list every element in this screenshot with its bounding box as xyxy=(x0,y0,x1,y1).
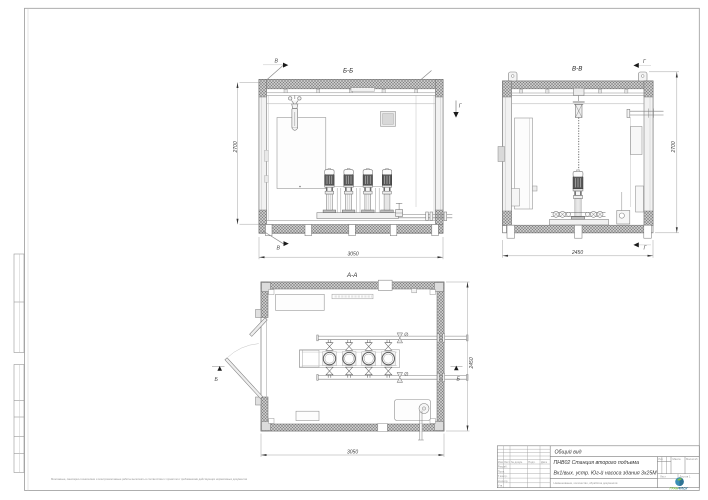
svg-text:Дата: Дата xyxy=(541,460,547,464)
svg-text:В-В: В-В xyxy=(572,66,582,73)
svg-text:В: В xyxy=(275,59,279,65)
svg-text:Наименование, количество, обра: Наименование, количество, обработка доку… xyxy=(554,481,618,485)
svg-text:Т.контр.: Т.контр. xyxy=(498,474,508,478)
svg-text:В: В xyxy=(277,246,281,252)
svg-text:Разраб.: Разраб. xyxy=(498,465,508,469)
svg-text:Масштаб: Масштаб xyxy=(686,457,698,461)
svg-text:Н.контр.: Н.контр. xyxy=(498,479,509,483)
svg-text:2450: 2450 xyxy=(571,250,583,256)
svg-text:2700: 2700 xyxy=(233,141,239,153)
svg-text:Пров.: Пров. xyxy=(498,469,505,473)
svg-text:ПНВ02 Станция второго подъема: ПНВ02 Станция второго подъема xyxy=(554,460,640,466)
svg-text:Изм: Изм xyxy=(498,460,503,464)
svg-text:3050: 3050 xyxy=(347,450,358,456)
svg-text:Масса: Масса xyxy=(673,457,681,461)
svg-text:2700: 2700 xyxy=(671,141,677,153)
svg-text:Вх1/вых. устр. Юг-й насоса зда: Вх1/вых. устр. Юг-й насоса здания 3х25М xyxy=(554,470,658,477)
svg-text:№ докум.: № докум. xyxy=(511,461,523,464)
svg-text:Лист: Лист xyxy=(660,475,667,479)
svg-text:Б-Б: Б-Б xyxy=(343,68,353,75)
svg-text:Общий вид: Общий вид xyxy=(555,449,582,456)
svg-text:Лит.: Лит. xyxy=(658,457,663,461)
svg-text:ГРАНФЛОУ: ГРАНФЛОУ xyxy=(670,486,689,490)
svg-text:Подп.: Подп. xyxy=(528,460,535,464)
svg-text:3050: 3050 xyxy=(348,252,359,258)
svg-text:Лист: Лист xyxy=(504,460,511,464)
svg-text:2450: 2450 xyxy=(469,357,475,369)
svg-text:Утв.: Утв. xyxy=(498,484,503,488)
svg-text:А-А: А-А xyxy=(346,272,357,279)
svg-text:Монтажные, санитарно-техническ: Монтажные, санитарно-технические и элект… xyxy=(51,477,248,481)
